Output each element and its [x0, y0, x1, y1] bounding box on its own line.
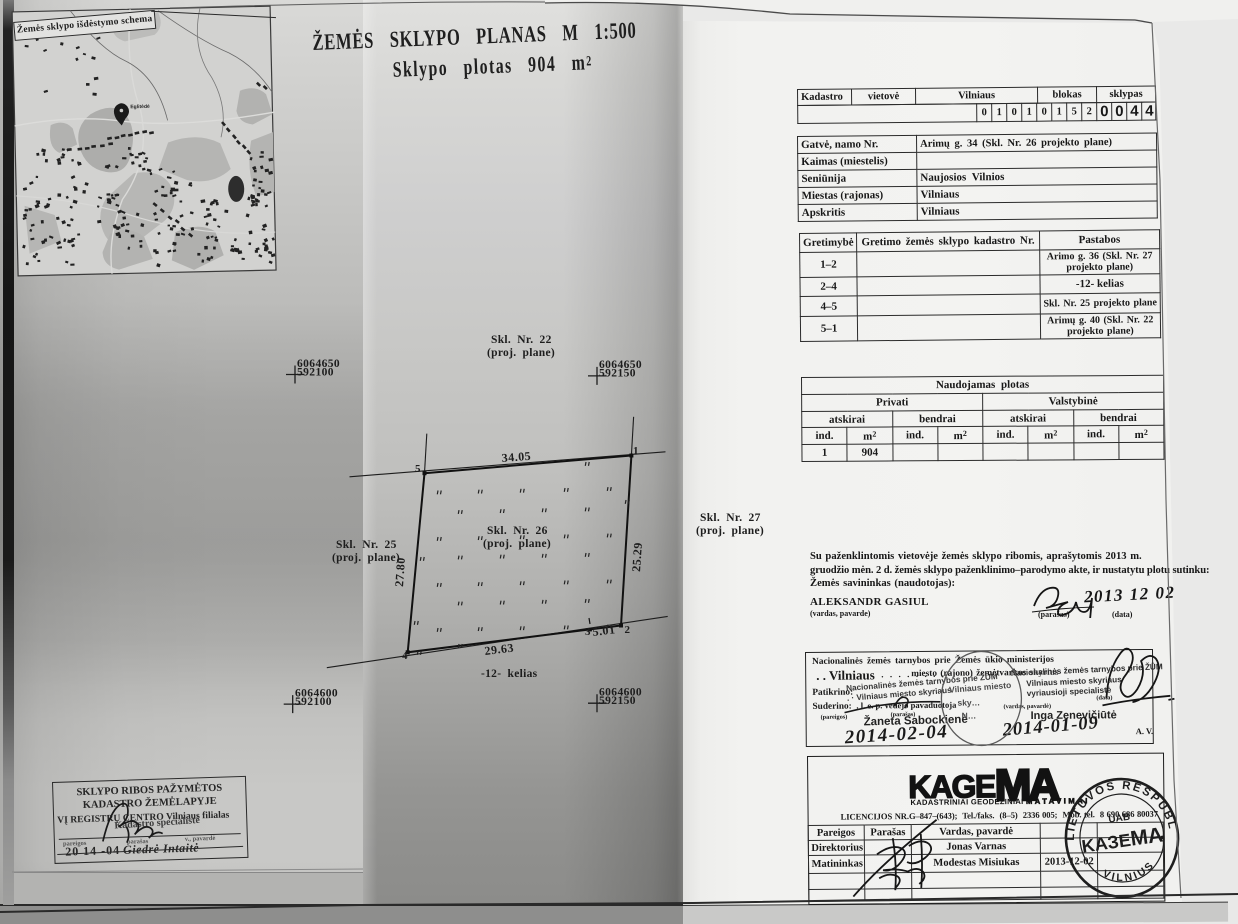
svg-text:592150: 592150: [599, 368, 636, 380]
svg-text:5: 5: [415, 463, 421, 475]
svg-text:592150: 592150: [599, 695, 636, 707]
svg-text:N…: N…: [962, 711, 977, 721]
svg-text:25.29: 25.29: [629, 542, 645, 572]
svg-text:VILNIUS: VILNIUS: [1099, 858, 1159, 888]
svg-text:(proj. plane): (proj. plane): [487, 347, 555, 359]
svg-text:592100: 592100: [295, 696, 332, 708]
svg-text:3: 3: [585, 626, 591, 638]
svg-text:(proj. plane): (proj. plane): [332, 552, 400, 564]
svg-text:Skl. Nr. 25: Skl. Nr. 25: [336, 539, 397, 551]
svg-text:592100: 592100: [297, 367, 334, 379]
svg-text:Skl. Nr. 22: Skl. Nr. 22: [491, 334, 552, 346]
svg-text:2: 2: [625, 624, 631, 636]
svg-text:KAЗEMA: KAЗEMA: [1080, 823, 1164, 857]
svg-text:-12- kelias: -12- kelias: [481, 668, 538, 680]
svg-text:(proj. plane): (proj. plane): [696, 525, 764, 537]
svg-text:sky…: sky…: [957, 697, 980, 707]
svg-text:Skl. Nr. 26: Skl. Nr. 26: [487, 525, 548, 537]
svg-text:Skl. Nr. 27: Skl. Nr. 27: [700, 512, 761, 524]
svg-text:(proj. plane): (proj. plane): [483, 538, 551, 550]
svg-text:Vilniaus miesto: Vilniaus miesto: [949, 680, 1012, 695]
svg-text:29.63: 29.63: [484, 640, 515, 657]
svg-text:1: 1: [633, 445, 639, 457]
svg-text:Eglitėdė: Eglitėdė: [130, 104, 150, 110]
svg-text:34.05: 34.05: [501, 449, 532, 465]
svg-text:5.01: 5.01: [592, 622, 617, 639]
svg-text:UAB: UAB: [1108, 812, 1131, 826]
svg-text:4: 4: [402, 650, 408, 662]
